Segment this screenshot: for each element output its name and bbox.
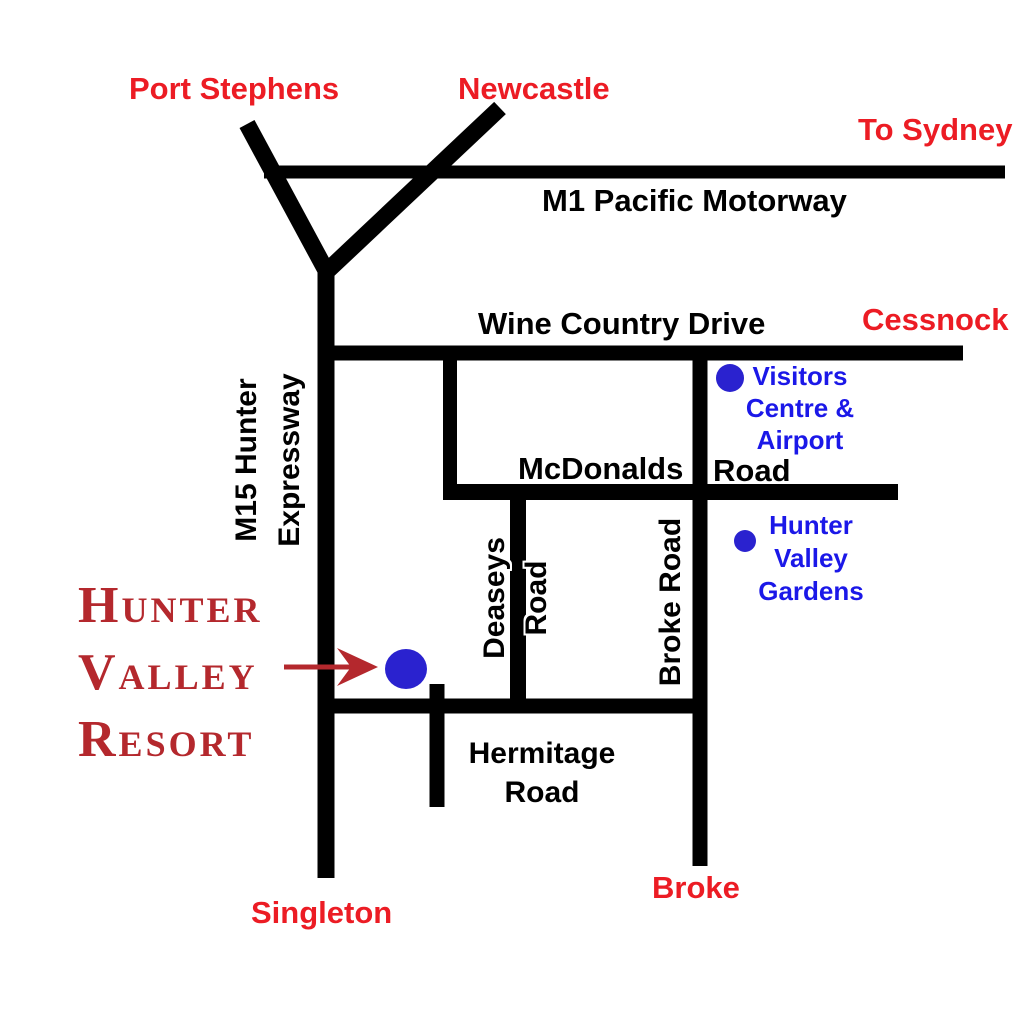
label-cessnock: Cessnock (862, 303, 1008, 337)
label-hermitage-road: Hermitage Road (469, 734, 616, 812)
label-visitors-line2: Centre & (746, 392, 854, 424)
label-resort-line1: Hunter (78, 572, 262, 639)
label-singleton: Singleton (251, 896, 392, 930)
road-to-port-stephens (247, 124, 329, 276)
label-deaseys-line1: Deaseys (474, 513, 516, 683)
label-deaseys-road: Deaseys Road (474, 513, 558, 683)
map-canvas (0, 0, 1024, 1024)
label-hermitage-line2: Road (469, 773, 616, 812)
label-m15-line1: M15 Hunter (225, 350, 268, 570)
label-visitors-line3: Airport (746, 424, 854, 456)
label-newcastle: Newcastle (458, 72, 610, 106)
label-broke-town: Broke (652, 871, 740, 905)
label-resort-line2: Valley (78, 639, 262, 706)
label-broke-road: Broke Road (653, 502, 689, 702)
label-gardens-line2: Valley (758, 542, 864, 575)
label-hermitage-line1: Hermitage (469, 734, 616, 773)
label-to-sydney: To Sydney (858, 113, 1012, 147)
label-m1-pacific-motorway: M1 Pacific Motorway (542, 184, 847, 218)
hunter-valley-resort-dot (385, 649, 427, 689)
label-deaseys-line2: Road (516, 513, 558, 683)
label-visitors-centre-airport: Visitors Centre & Airport (746, 360, 854, 456)
label-m15-line2: Expressway (268, 350, 311, 570)
label-mcdonalds-road-suffix: Road (713, 454, 791, 488)
label-mcdonalds: McDonalds (518, 452, 683, 486)
label-hunter-valley-gardens: Hunter Valley Gardens (758, 509, 864, 608)
label-resort-line3: Resort (78, 706, 262, 773)
label-hunter-valley-resort: Hunter Valley Resort (78, 572, 262, 773)
road-to-newcastle (324, 108, 500, 274)
label-wine-country-drive: Wine Country Drive (478, 307, 765, 341)
visitors-centre-dot (716, 364, 744, 392)
hunter-valley-map: Port Stephens Newcastle To Sydney Cessno… (0, 0, 1024, 1024)
label-m15-hunter-expressway: M15 Hunter Expressway (225, 350, 311, 570)
hunter-valley-gardens-dot (734, 530, 756, 552)
label-gardens-line3: Gardens (758, 575, 864, 608)
label-visitors-line1: Visitors (746, 360, 854, 392)
label-port-stephens: Port Stephens (129, 72, 339, 106)
label-gardens-line1: Hunter (758, 509, 864, 542)
